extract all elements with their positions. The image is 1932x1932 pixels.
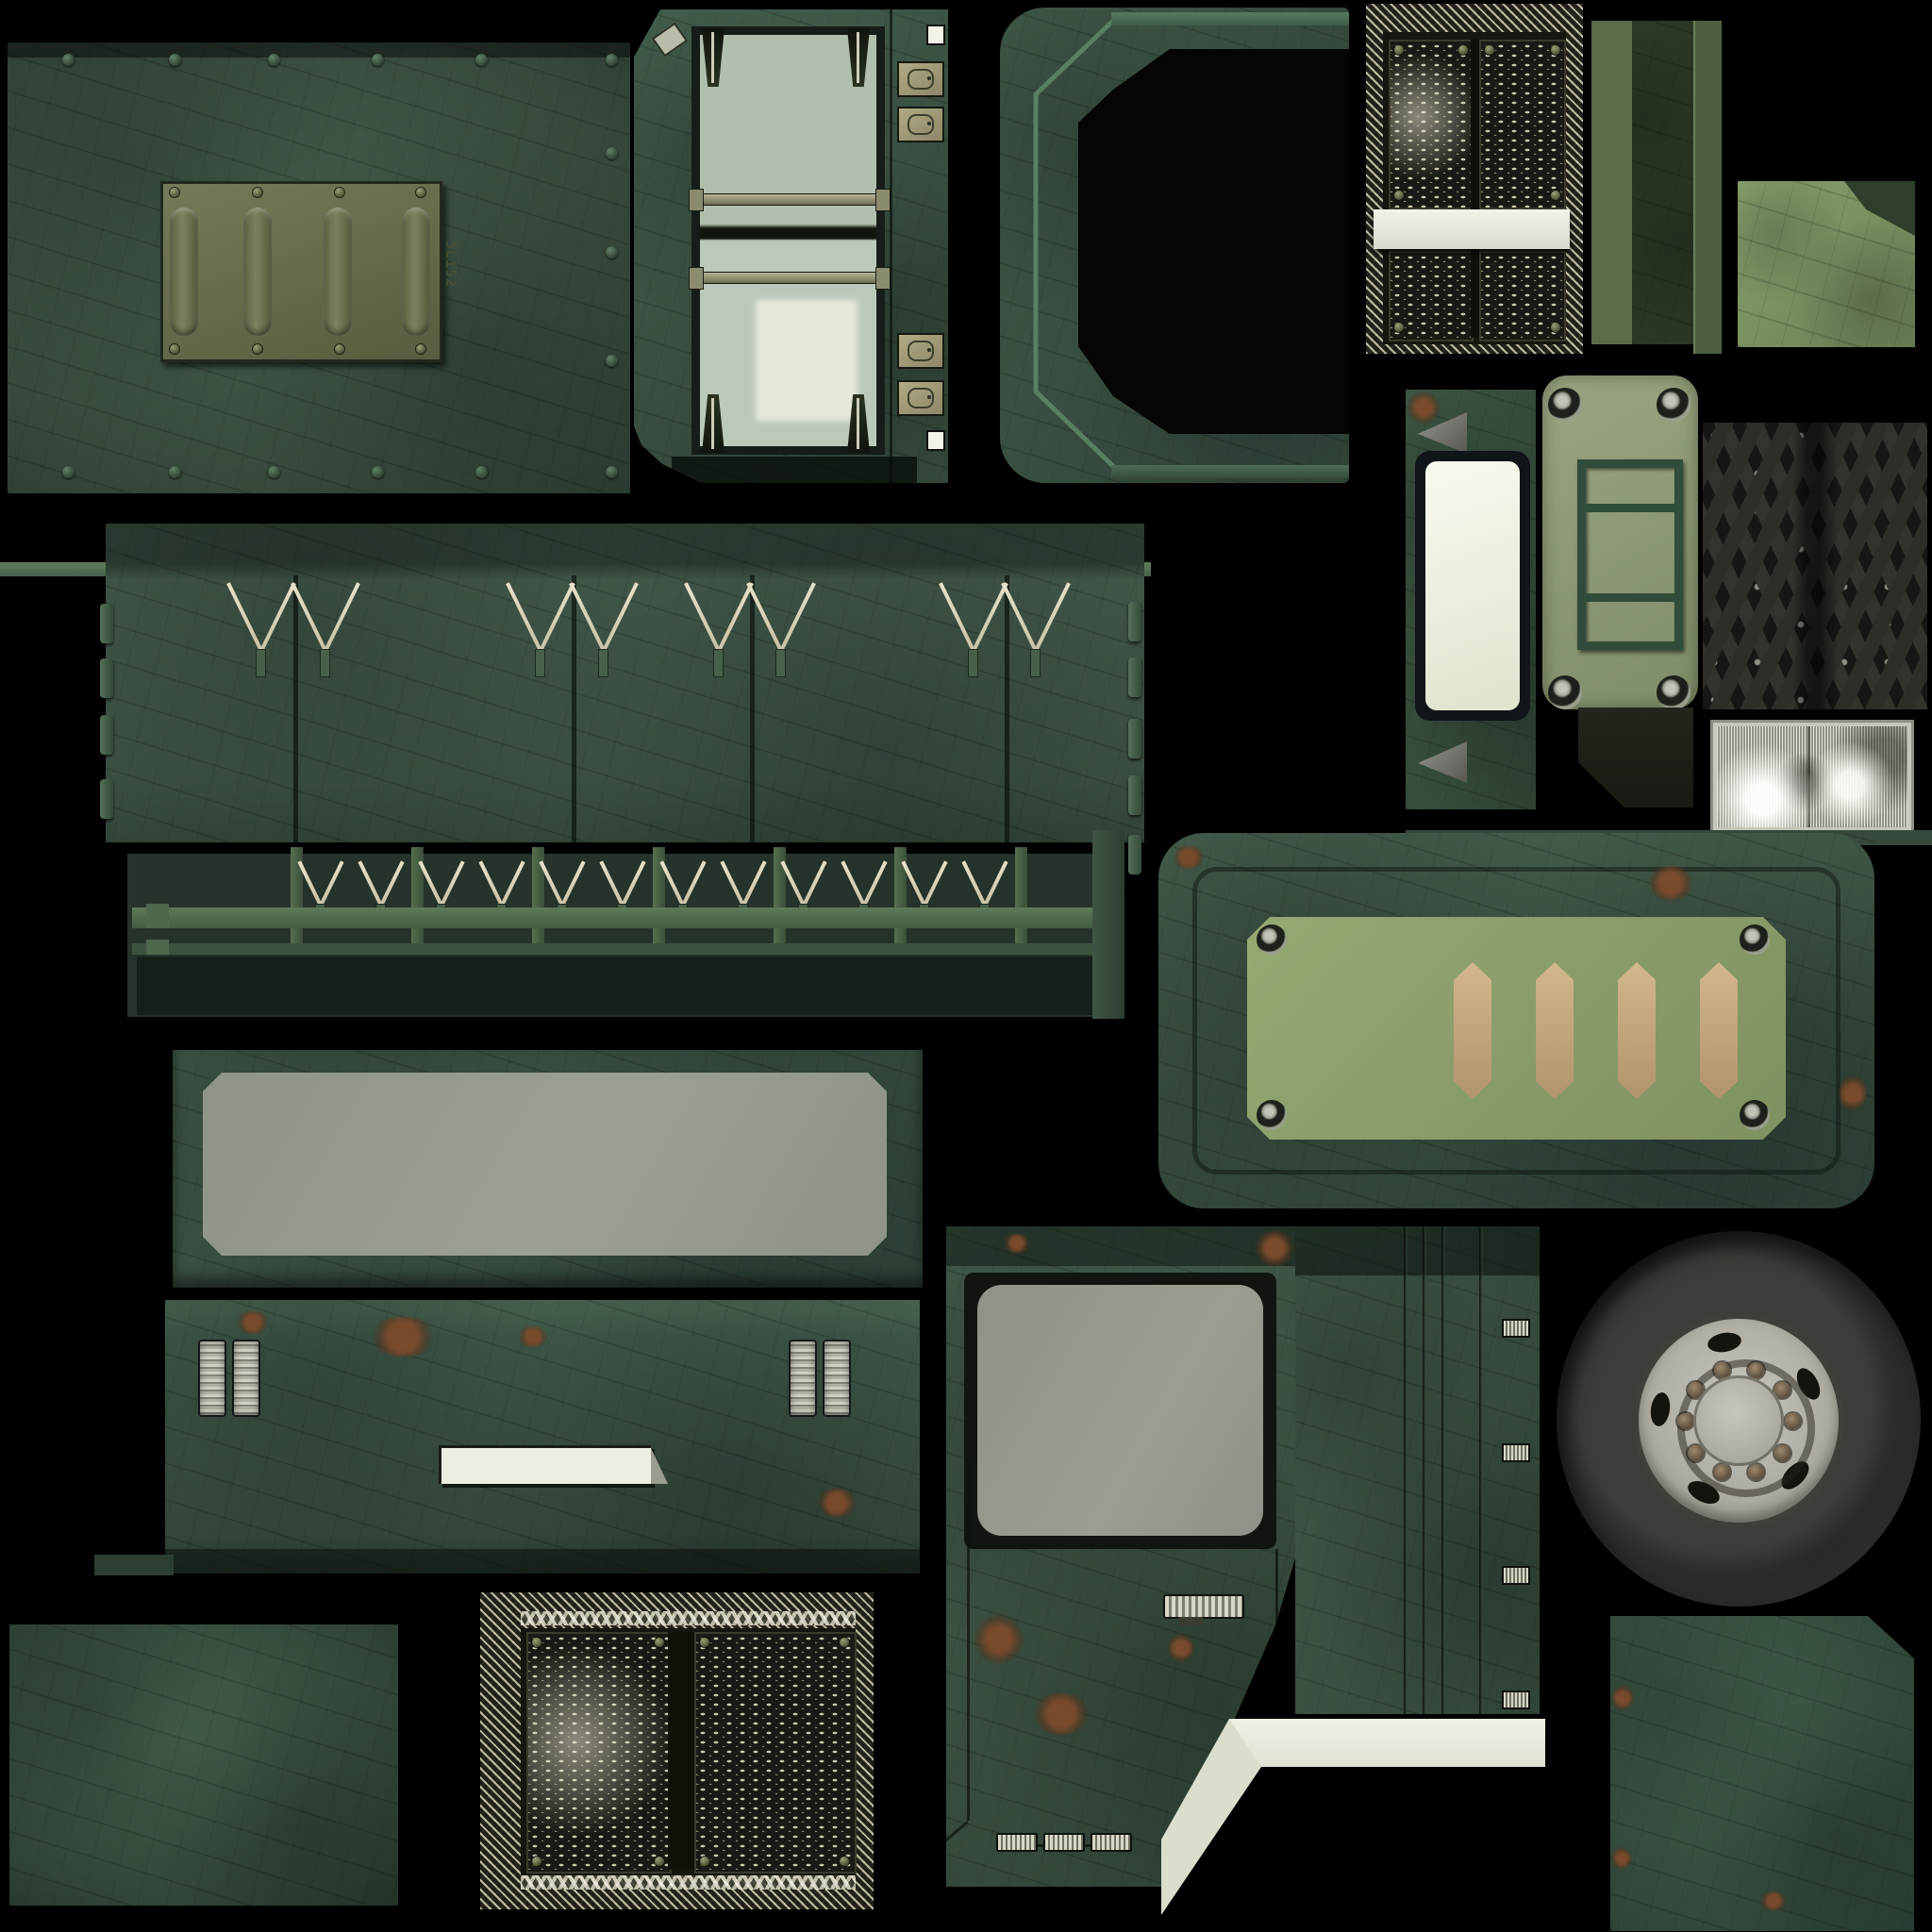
rivet — [169, 54, 181, 66]
bracket-tab — [1578, 708, 1693, 808]
latch — [897, 333, 944, 369]
stamped-access-plate: 5L152 — [160, 181, 442, 362]
rail-shadow — [137, 957, 1118, 1015]
crossbar-bracket — [689, 267, 704, 290]
rivet-plate — [1502, 1443, 1530, 1462]
door-seam — [937, 1821, 969, 1848]
screw — [700, 1857, 709, 1866]
groove — [1423, 1226, 1426, 1714]
lug-nut — [1785, 1413, 1801, 1429]
bolt — [1657, 388, 1690, 422]
door-bottom-shadow — [672, 457, 917, 483]
wood-slat — [1618, 962, 1656, 1099]
lug-nut — [1774, 1445, 1790, 1461]
step-plate — [439, 1445, 651, 1484]
cab-door-window-frame — [964, 1273, 1276, 1549]
grooved-side-panel — [1295, 1226, 1540, 1714]
panel-top-bevel — [8, 42, 630, 58]
white-trim-ribbon — [1229, 1719, 1545, 1767]
screw — [253, 344, 262, 354]
cargo-bed-side — [106, 524, 1144, 842]
roof-shadow-wedge — [1738, 181, 1915, 347]
screw — [1394, 323, 1404, 332]
screw — [700, 1638, 709, 1647]
perforated-panel — [1479, 40, 1566, 209]
roof-plate — [1738, 181, 1915, 347]
wood-slat — [1536, 962, 1574, 1099]
latch-pin — [926, 430, 945, 451]
hinge-peg — [100, 779, 113, 819]
hinge-peg — [1128, 658, 1141, 697]
hinge-peg — [100, 604, 113, 643]
screw — [335, 344, 344, 354]
rust-spot — [1840, 1074, 1866, 1113]
rust-spot — [1612, 1846, 1631, 1871]
door-seam — [967, 1457, 970, 1821]
perforated-panel — [526, 1632, 672, 1874]
rivet — [372, 54, 384, 66]
ladder-bracket — [1577, 459, 1683, 650]
hinge-peg — [1128, 719, 1141, 758]
bolt — [1548, 388, 1582, 422]
rail-bar — [132, 908, 1123, 928]
rivet — [475, 466, 488, 478]
bolted-bracket-plate — [1542, 375, 1698, 709]
rivet — [268, 54, 280, 66]
rivet — [169, 466, 181, 478]
rust-spot — [236, 1311, 270, 1334]
screw — [170, 344, 179, 354]
glass-reflection — [756, 300, 858, 421]
rivet-plate — [1502, 1566, 1530, 1585]
rust-spot — [1759, 1891, 1788, 1910]
hinge-strap — [823, 1340, 851, 1417]
door-top-band — [946, 1226, 1297, 1266]
cowl-panel — [165, 1300, 920, 1574]
rivet — [606, 355, 618, 367]
plate-stamp-text: 5L152 — [435, 241, 459, 312]
door-badge — [652, 23, 688, 58]
groove — [1441, 1226, 1445, 1714]
bolt — [1740, 1100, 1770, 1130]
arrow-icon — [1418, 741, 1467, 783]
rivet — [268, 466, 280, 478]
rear-door-window-frame — [691, 26, 885, 455]
latch — [897, 380, 944, 416]
hinge-plate — [996, 1833, 1038, 1852]
windshield-glass — [203, 1073, 887, 1256]
door-handle — [1163, 1594, 1244, 1619]
hinge-peg — [100, 715, 113, 755]
rust-spot — [1255, 1230, 1294, 1266]
armor-square-left — [9, 1624, 398, 1906]
screw — [1551, 191, 1560, 200]
lug-nut — [1748, 1464, 1764, 1480]
grille-highlight — [1391, 42, 1472, 208]
mirror-glass — [1425, 461, 1520, 710]
screw — [655, 1638, 664, 1647]
rail-end-wall — [1092, 830, 1124, 1019]
rivet-plate — [1502, 1319, 1530, 1338]
texture-atlas: 5L152 — [0, 0, 1932, 1932]
cowl-step-block — [94, 1555, 174, 1575]
bolt — [1548, 675, 1582, 709]
perforated-panel — [694, 1632, 857, 1874]
bolt — [1257, 1100, 1287, 1130]
latch — [897, 61, 944, 97]
window-crossbar — [693, 272, 886, 284]
rear-door — [634, 9, 948, 483]
road-wheel — [1557, 1231, 1921, 1607]
rivet — [606, 54, 618, 66]
screw — [532, 1638, 541, 1647]
grille-center-bar — [668, 1632, 694, 1870]
door-seam — [1275, 1549, 1278, 1625]
crossbar-bracket — [875, 267, 891, 290]
rust-spot — [1031, 1693, 1091, 1735]
hinge-plate — [1091, 1833, 1132, 1852]
rust-spot — [368, 1317, 438, 1357]
rivet — [606, 246, 618, 258]
rail-end-block — [146, 904, 169, 928]
screw — [1551, 323, 1560, 332]
rope-hook — [560, 575, 647, 681]
screw — [416, 344, 425, 354]
rivet-plate — [1502, 1690, 1530, 1709]
zigzag-edge — [521, 1875, 856, 1890]
latch-pin — [926, 25, 945, 45]
screw — [416, 188, 425, 197]
rivet — [62, 466, 75, 478]
slat-backplate — [1247, 917, 1786, 1140]
screw — [253, 188, 262, 197]
cowl-bottom-lip — [165, 1549, 920, 1574]
rope-hook — [282, 575, 369, 681]
mirror-bar — [1406, 390, 1536, 809]
screw — [335, 188, 344, 197]
rust-spot — [517, 1326, 549, 1347]
lug-nut — [1748, 1362, 1764, 1378]
armor-square-right — [1610, 1616, 1914, 1931]
zigzag-edge — [521, 1611, 856, 1625]
latch — [897, 107, 944, 142]
screw — [1394, 45, 1404, 55]
window-crossbar — [693, 193, 886, 206]
rope-hook — [992, 575, 1079, 681]
bolt — [1257, 924, 1287, 955]
perforated-panel — [1389, 40, 1474, 209]
hinge-peg — [1128, 602, 1141, 641]
grille-white-strip — [1374, 209, 1570, 249]
bolt — [1657, 675, 1690, 709]
grille-highlight — [528, 1634, 670, 1872]
frame-trim-line — [1000, 8, 1349, 483]
grille-center-bar — [1471, 40, 1479, 338]
screw — [655, 1857, 664, 1866]
upper-grille — [1366, 4, 1583, 354]
hinge-strap — [232, 1340, 260, 1417]
windshield-frame — [173, 1050, 923, 1288]
rust-spot — [1169, 1632, 1193, 1664]
wood-slat — [1700, 962, 1738, 1099]
lug-nut — [1714, 1464, 1730, 1480]
headlight-reflections — [1717, 726, 1907, 827]
hinge-peg — [1128, 835, 1141, 874]
plate-rib — [170, 208, 198, 336]
hub-cap — [1693, 1375, 1784, 1466]
frame-bottom-rail — [1111, 465, 1349, 478]
panel-top-band — [1295, 1226, 1540, 1275]
bolt — [1740, 924, 1770, 955]
plate-rib — [324, 208, 352, 336]
hinge-peg — [1128, 775, 1141, 815]
rail-bar-lower — [132, 943, 1123, 955]
rust-spot — [1612, 1684, 1633, 1712]
screw — [170, 188, 179, 197]
rust-spot — [1172, 846, 1206, 869]
rivet — [606, 466, 618, 478]
hinge-peg — [100, 658, 113, 698]
screw — [840, 1857, 849, 1866]
rust-spot — [816, 1489, 858, 1517]
screw — [1458, 45, 1468, 55]
rivet — [606, 147, 618, 159]
rivet — [475, 54, 488, 66]
rivet — [62, 54, 75, 66]
rust-spot — [1407, 391, 1440, 424]
crossbar-bracket — [689, 189, 704, 211]
frame-top-rail — [1111, 12, 1349, 25]
plate-rib — [243, 208, 272, 336]
rail-end-block — [146, 940, 169, 955]
plate-rib — [402, 208, 430, 336]
paint-strip-mid — [1693, 21, 1722, 354]
riveted-armor-panel: 5L152 — [8, 42, 630, 493]
cargo-rail — [127, 828, 1124, 1019]
slat-panel — [1158, 833, 1874, 1208]
groove — [1404, 1226, 1407, 1714]
hinge-strap — [789, 1340, 817, 1417]
panel-seam — [890, 9, 892, 483]
rust-spot — [974, 1615, 1024, 1664]
paint-strip-light — [1591, 21, 1632, 344]
groove — [1479, 1226, 1483, 1714]
screw — [840, 1638, 849, 1647]
screw — [1551, 45, 1560, 55]
lower-grille — [480, 1592, 874, 1909]
rivet — [372, 466, 384, 478]
screw — [532, 1857, 541, 1866]
crossbar-bracket — [875, 189, 891, 211]
paint-strip-dark — [1632, 21, 1693, 344]
cab-door-window-glass — [977, 1285, 1263, 1536]
lug-nut — [1677, 1413, 1693, 1429]
rust-spot — [1003, 1234, 1031, 1253]
screw — [1394, 191, 1404, 200]
tire-tread — [1703, 423, 1927, 709]
screw — [1485, 45, 1494, 55]
wood-slat — [1454, 962, 1491, 1099]
cab-door-frame — [1000, 8, 1349, 483]
rope-hook — [738, 575, 824, 681]
hinge-plate — [1043, 1833, 1085, 1852]
headlight — [1710, 720, 1914, 834]
hinge-strap — [198, 1340, 226, 1417]
rust-spot — [1646, 866, 1695, 900]
